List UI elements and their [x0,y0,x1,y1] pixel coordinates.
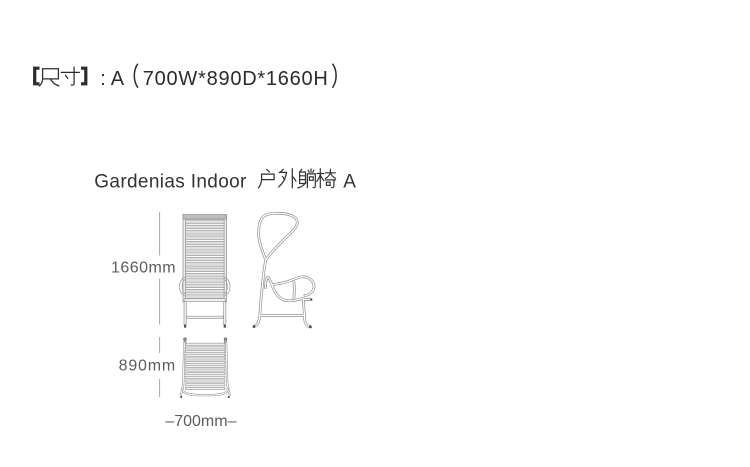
svg-text:A: A [111,68,125,90]
svg-text:1660mm: 1660mm [111,260,176,277]
svg-text::: : [100,68,106,90]
svg-text:A: A [343,171,356,192]
svg-text:700W*890D*1660H: 700W*890D*1660H [143,68,329,90]
svg-text:Gardenias Indoor: Gardenias Indoor [94,171,247,192]
svg-text:–700mm–: –700mm– [165,413,236,430]
svg-text:890mm: 890mm [119,358,176,375]
